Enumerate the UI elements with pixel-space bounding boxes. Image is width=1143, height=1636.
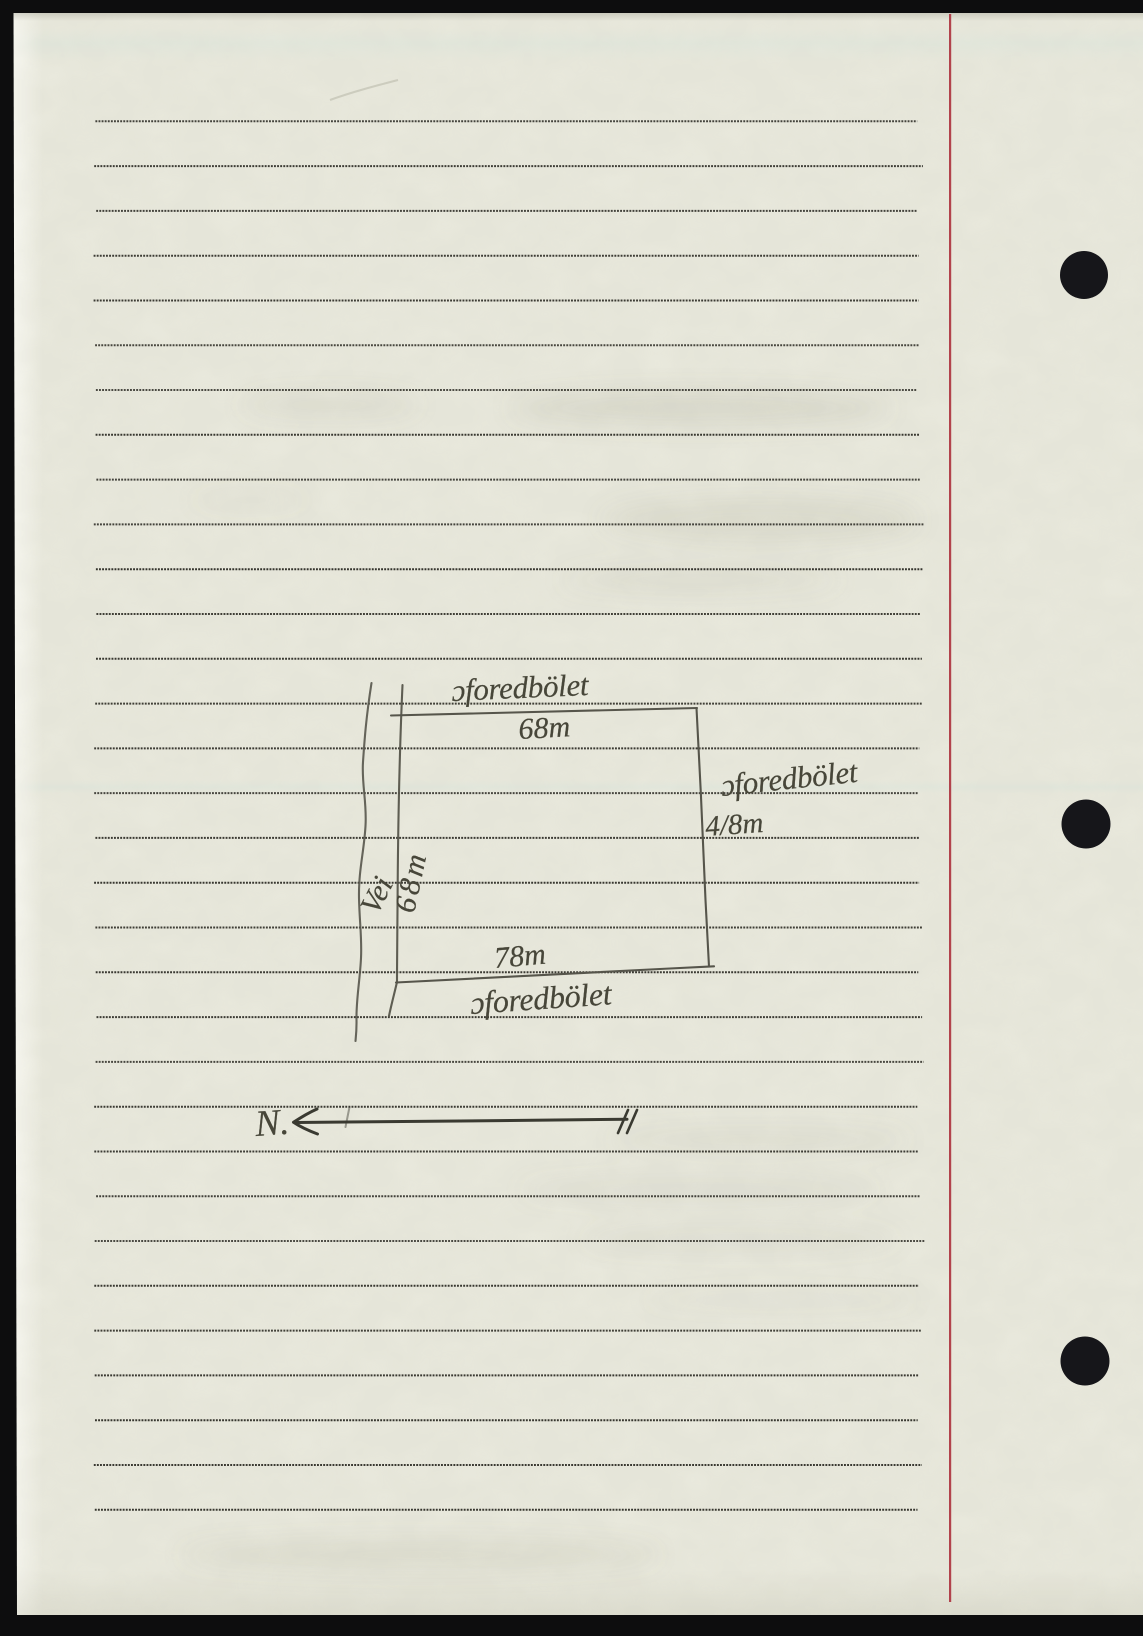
svg-text:N.: N. <box>253 1102 291 1145</box>
svg-text:ɔforedbölet: ɔforedbölet <box>451 667 591 708</box>
svg-text:4/8m: 4/8m <box>704 807 764 843</box>
svg-text:78m: 78m <box>493 938 547 975</box>
svg-text:68m: 68m <box>518 710 571 746</box>
